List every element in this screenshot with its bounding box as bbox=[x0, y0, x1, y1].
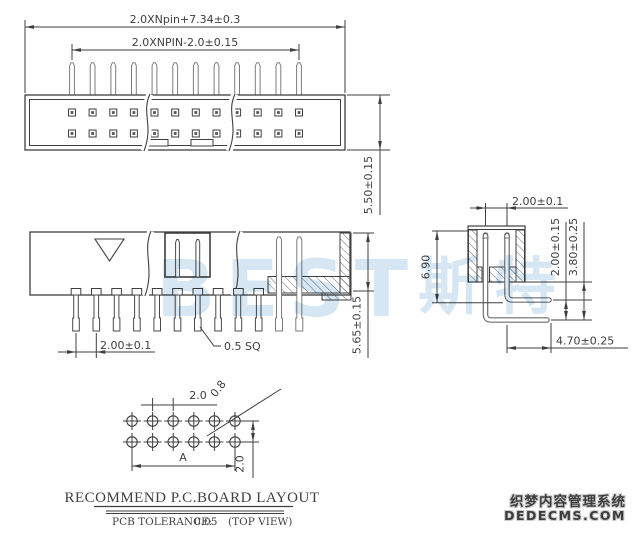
footer-watermark: 织梦内容管理系统 DEDECMS.COM bbox=[504, 495, 626, 522]
connector-drawing-svg: 2.0XNpin+7.34±0.3 2.0XNPIN-2.0±0.15 bbox=[0, 0, 632, 536]
front-view: 2.00±0.1 0.5 SQ 5.65±0.15 bbox=[30, 231, 374, 358]
side-hatch-floor bbox=[490, 267, 517, 282]
connector-body-outline bbox=[25, 95, 345, 150]
pcb-tolerance-value: 0.05 bbox=[194, 516, 217, 528]
dim-text-span-a: A bbox=[179, 451, 187, 464]
footer-watermark-en: DEDECMS.COM bbox=[504, 509, 626, 522]
pcb-holes bbox=[123, 412, 244, 451]
footer-watermark-cn: 织梦内容管理系统 bbox=[504, 495, 626, 509]
side-view: 2.00±0.1 6.90 2.00±0.15 3.80±0. bbox=[420, 195, 629, 353]
dim-text-pin-span: 2.0XNPIN-2.0±0.15 bbox=[132, 36, 239, 49]
side-hatch-floor bbox=[477, 267, 482, 282]
side-hatch-wall-right bbox=[516, 230, 525, 282]
dim-text-side-row: 2.00±0.15 bbox=[549, 218, 562, 276]
dim-text-hole-diameter: 0.8 bbox=[208, 378, 229, 400]
dim-text-side-pitch: 2.00±0.1 bbox=[512, 195, 563, 208]
pcb-layout: 2.0 0.8 A 2.0 RECOMMEND P.C.BOARD LAYOUT… bbox=[65, 378, 320, 528]
pcb-view-label: (TOP VIEW) bbox=[228, 516, 292, 528]
top-view-pins bbox=[70, 63, 302, 96]
section-hatch-wall bbox=[340, 233, 351, 293]
dim-text-side-tail: 4.70±0.25 bbox=[556, 335, 614, 348]
dim-text-front-height: 5.65±0.15 bbox=[351, 296, 364, 354]
side-hatch-wall-left bbox=[469, 230, 478, 282]
top-view: 2.0XNpin+7.34±0.3 2.0XNPIN-2.0±0.15 bbox=[25, 13, 390, 215]
pcb-layout-title: RECOMMEND P.C.BOARD LAYOUT bbox=[65, 490, 320, 506]
section-hatch-step bbox=[322, 293, 351, 300]
pin-tip bbox=[504, 234, 509, 239]
technical-drawing-canvas: 2.0XNpin+7.34±0.3 2.0XNPIN-2.0±0.15 bbox=[0, 0, 632, 536]
key-notch bbox=[191, 140, 213, 147]
dim-text-pin-square: 0.5 SQ bbox=[224, 340, 261, 353]
dim-text-hole-pitch-h: 2.0 bbox=[189, 389, 207, 402]
dim-text-side-offset: 3.80±0.25 bbox=[567, 218, 580, 276]
dim-text-pin-pitch: 2.00±0.1 bbox=[100, 339, 151, 352]
pin-tip bbox=[483, 234, 488, 239]
dim-text-overall-width: 2.0XNpin+7.34±0.3 bbox=[130, 13, 241, 26]
dim-text-hole-pitch-v: 2.0 bbox=[234, 455, 247, 473]
cutaway-window bbox=[165, 233, 210, 277]
dim-text-body-height: 5.50±0.15 bbox=[362, 156, 375, 214]
dim-text-side-body: 6.90 bbox=[420, 255, 433, 280]
